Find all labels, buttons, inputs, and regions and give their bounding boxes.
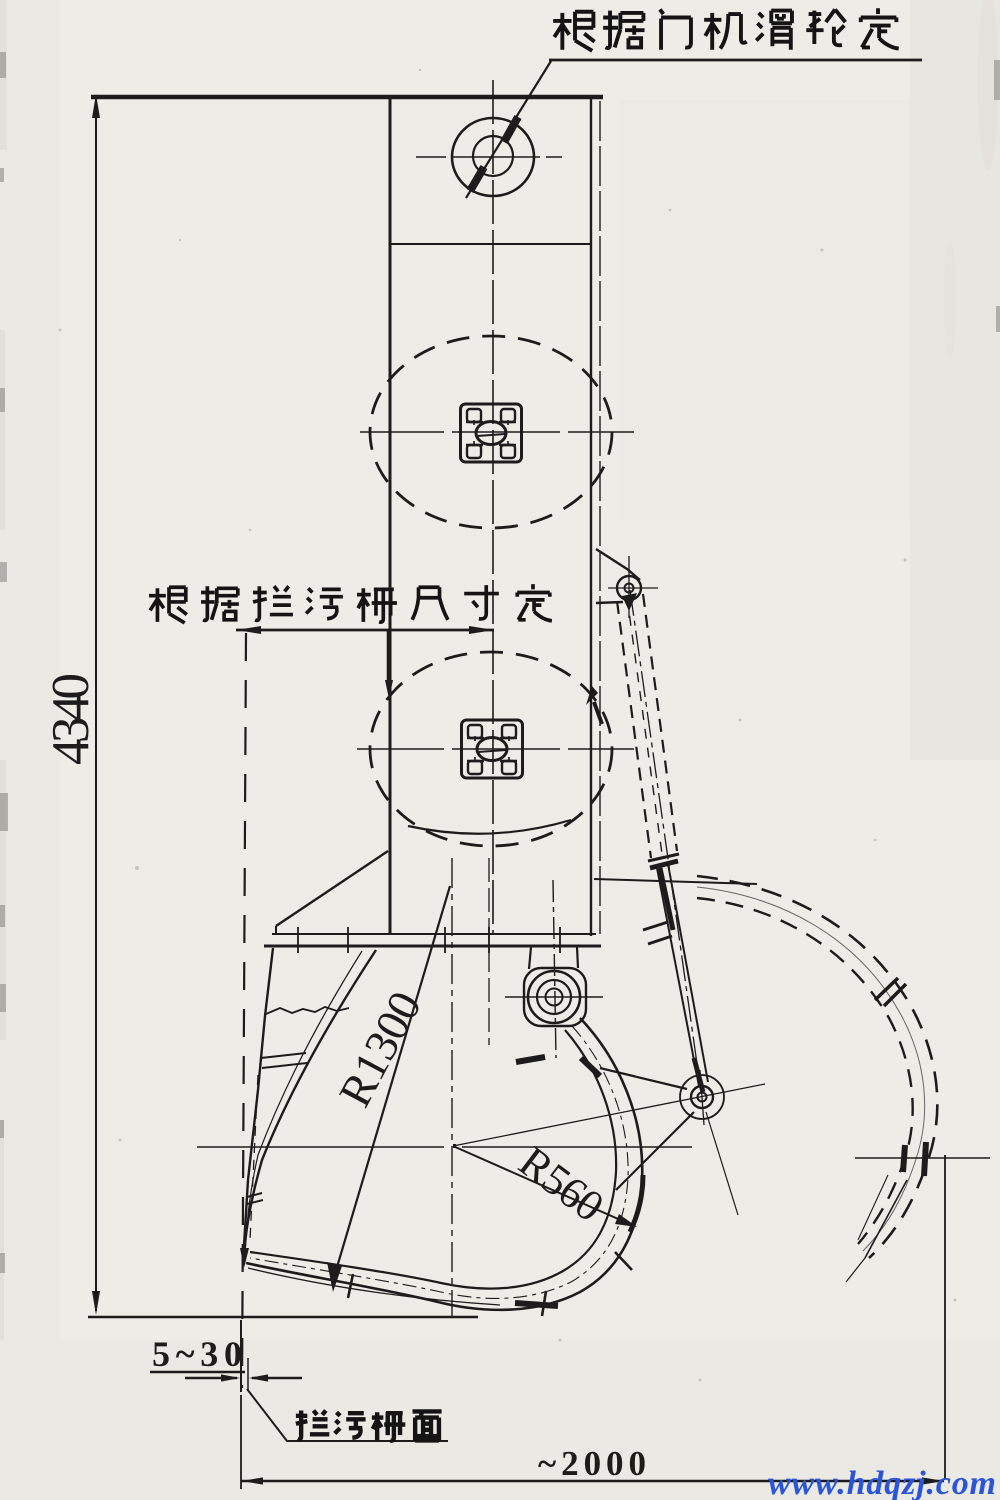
svg-text:4340: 4340	[42, 673, 100, 765]
svg-text:www.hdqzj.com: www.hdqzj.com	[768, 1465, 996, 1500]
svg-text:~2000: ~2000	[538, 1444, 646, 1483]
